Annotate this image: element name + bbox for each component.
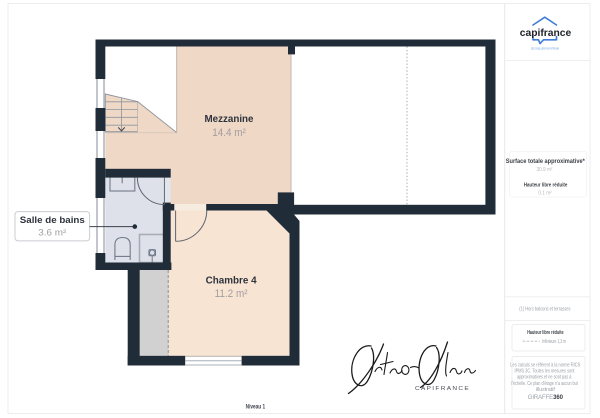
svg-text:11.2 m²: 11.2 m²	[215, 288, 248, 300]
svg-text:CAPIFRANCE: CAPIFRANCE	[415, 386, 470, 392]
svg-text:capifrance: capifrance	[520, 28, 572, 39]
svg-text:Chambre 4: Chambre 4	[206, 275, 257, 287]
svg-text:l'échelle. Ce plan d'étage n'a: l'échelle. Ce plan d'étage n'a aucun but	[511, 381, 578, 387]
svg-text:Salle de bains: Salle de bains	[20, 215, 85, 225]
svg-text:IPMS 3C. Toutes les mesures so: IPMS 3C. Toutes les mesures sont	[515, 369, 575, 375]
svg-text:Surface totale approximative*: Surface totale approximative*	[506, 158, 586, 165]
svg-text:DES CONSEILLERS POUR VOTRE BIE: DES CONSEILLERS POUR VOTRE BIEN	[531, 46, 559, 50]
svg-text:Niveau 1: Niveau 1	[246, 403, 266, 410]
svg-text:illustratif: illustratif	[536, 387, 556, 393]
svg-text:0.1 m²: 0.1 m²	[538, 190, 552, 196]
svg-text:(1) Hors balcons et terrasses: (1) Hors balcons et terrasses	[519, 307, 570, 313]
svg-text:Hauteur libre réduite: Hauteur libre réduite	[524, 183, 568, 189]
svg-text:GIRAFFE360: GIRAFFE360	[528, 395, 564, 401]
svg-text:3.6 m²: 3.6 m²	[38, 228, 66, 238]
svg-text:Les calculs se réfèrent à la n: Les calculs se réfèrent à la norme RICS	[510, 362, 580, 368]
svg-text:30.9 m²: 30.9 m²	[537, 167, 553, 173]
svg-text:Inférieure 1,3 m: Inférieure 1,3 m	[542, 339, 566, 345]
svg-text:Hauteur libre réduite: Hauteur libre réduite	[527, 330, 563, 336]
svg-text:approximatives et ne sont pas: approximatives et ne sont pas à	[517, 375, 572, 381]
svg-text:Mezzanine: Mezzanine	[205, 113, 254, 125]
svg-text:14.4 m²: 14.4 m²	[212, 127, 246, 139]
